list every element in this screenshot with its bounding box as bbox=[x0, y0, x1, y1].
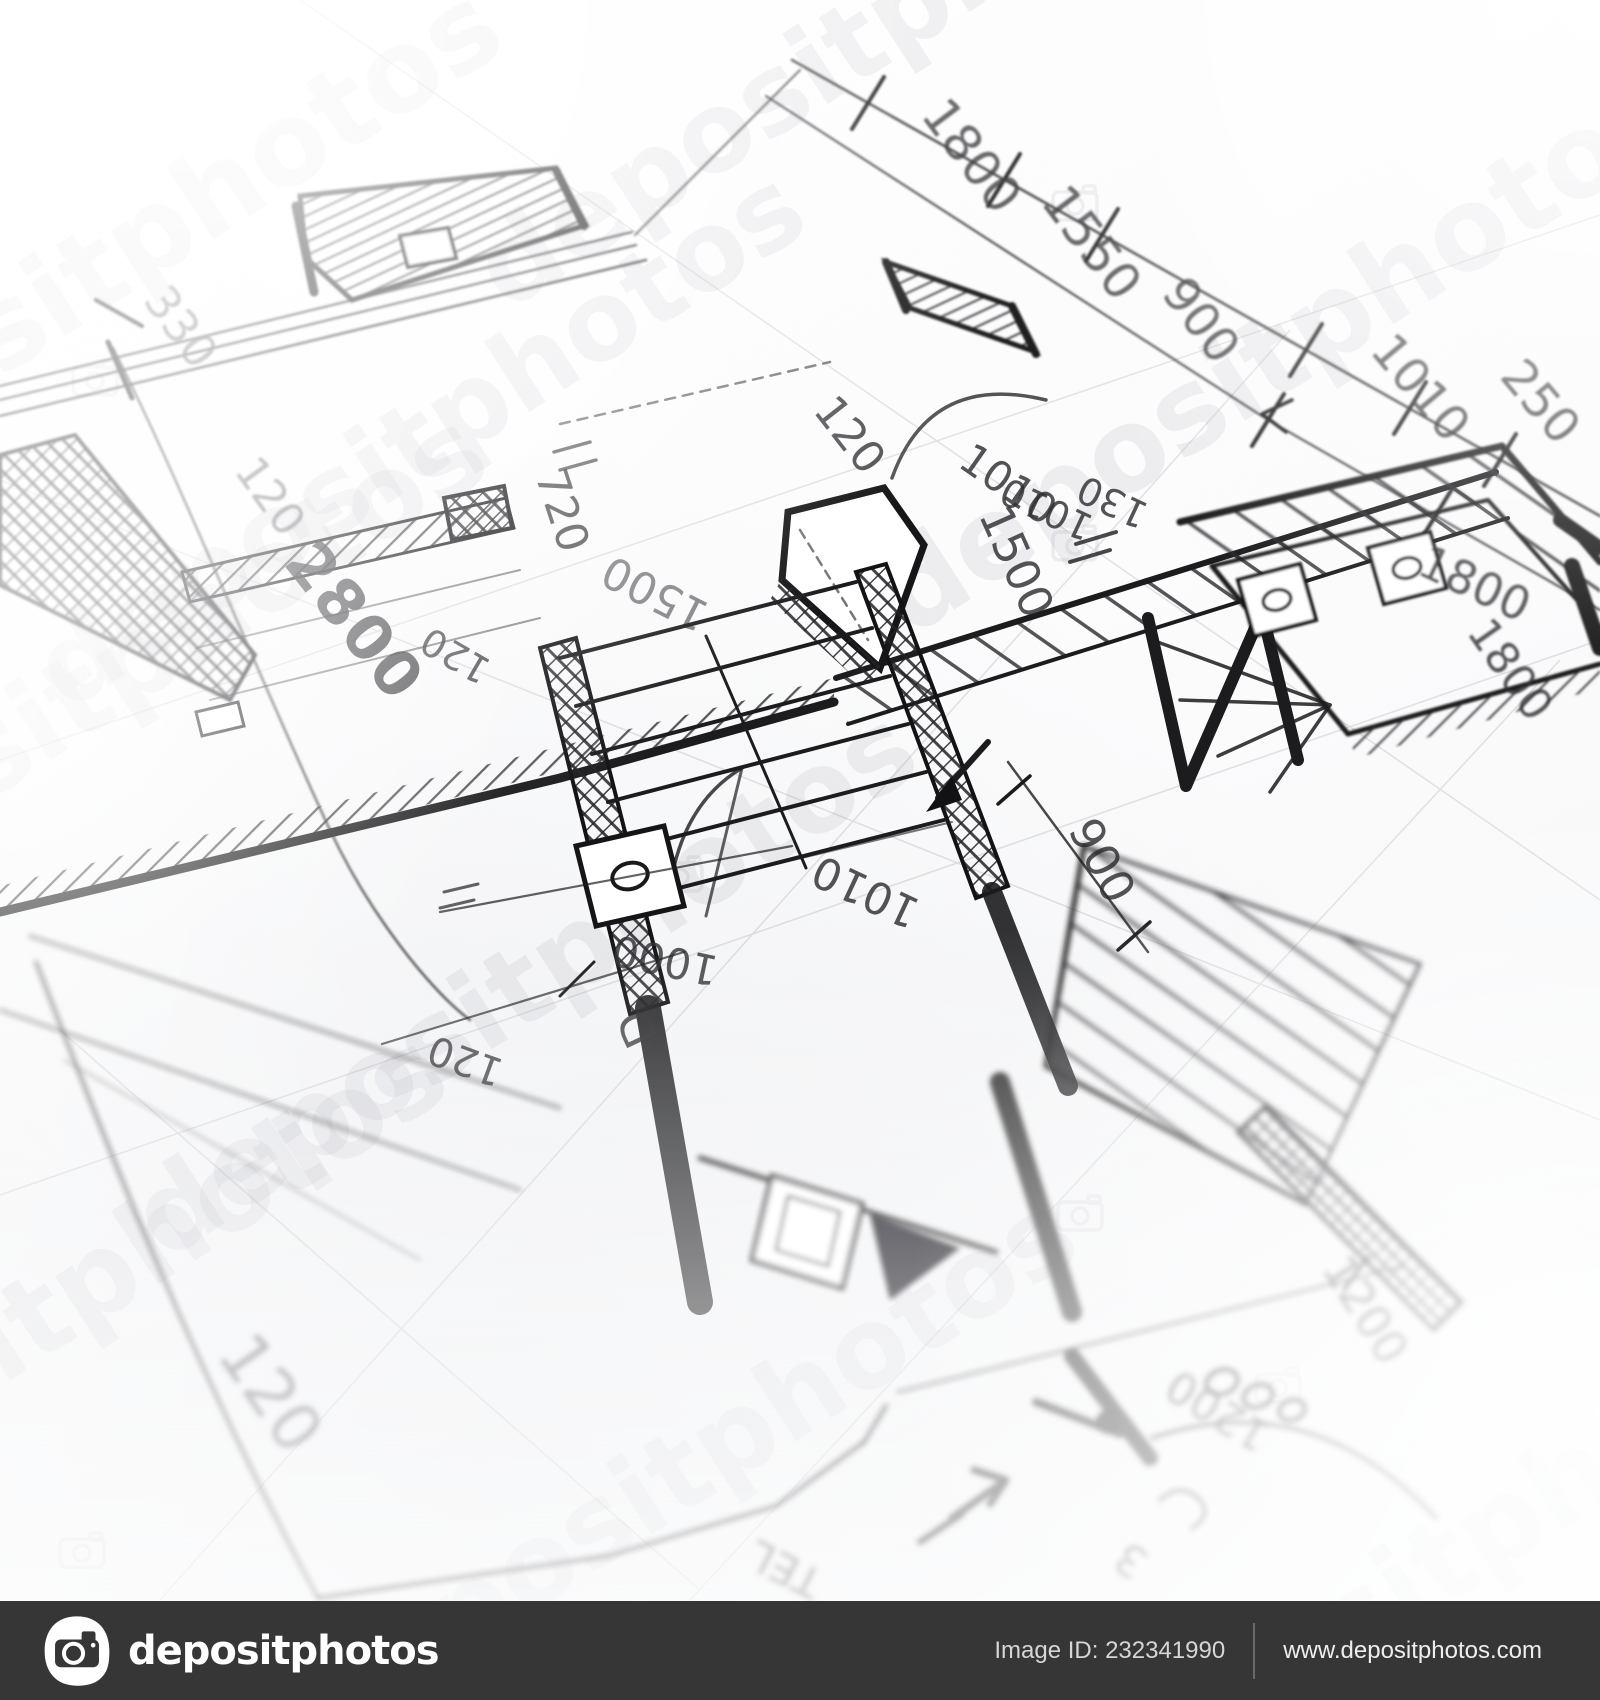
dim-label-1010-lower: 1010 bbox=[804, 844, 927, 938]
striped-room bbox=[1046, 846, 1420, 1204]
dim-label-1500-flipped: 1500 bbox=[594, 545, 717, 641]
dim-label-250: 250 bbox=[1489, 349, 1591, 455]
footer-brand-block: depositphotos bbox=[0, 1614, 439, 1688]
label-TEL: TEL bbox=[740, 1530, 831, 1601]
footer-url: www.depositphotos.com bbox=[1283, 1637, 1542, 1665]
floorplan-sketch-photo: depositphotos depositphotos depositphoto… bbox=[0, 0, 1600, 1601]
depositphotos-camera-icon bbox=[40, 1614, 114, 1688]
footer-meta-block: Image ID: 232341990 www.depositphotos.co… bbox=[994, 1623, 1600, 1679]
top-right-room: 1800 1800 bbox=[1180, 446, 1600, 758]
dim-label-720: 720 bbox=[525, 463, 599, 559]
dim-label-120-flipped: 120 bbox=[413, 618, 498, 692]
digit-3: 3 bbox=[1106, 1531, 1158, 1589]
dim-label-120-big: 120 bbox=[203, 1319, 338, 1466]
dim-label-1800-chain: 1800 bbox=[910, 88, 1033, 225]
stock-photo-page: depositphotos depositphotos depositphoto… bbox=[0, 0, 1600, 1700]
door-swing-arc-bottom bbox=[1152, 1422, 1436, 1518]
arrow-bottom bbox=[952, 1470, 1006, 1518]
dim-label-1800-room: 1800 bbox=[1410, 534, 1539, 632]
floorplan-sketch: depositphotos depositphotos depositphoto… bbox=[0, 0, 1600, 1601]
dim-label-1550: 1550 bbox=[1030, 175, 1153, 312]
dim-label-120-top: 120 bbox=[803, 386, 895, 484]
watermark-footer-bar: depositphotos Image ID: 232341990 www.de… bbox=[0, 1601, 1600, 1700]
door-frame bbox=[752, 1176, 862, 1288]
footer-brand-text: depositphotos bbox=[128, 1628, 439, 1674]
footer-divider bbox=[1253, 1623, 1255, 1679]
footer-image-id: Image ID: 232341990 bbox=[994, 1637, 1225, 1665]
dim-label-1010-chain: 1010 bbox=[1360, 323, 1481, 453]
wall-dark-vertical bbox=[648, 1008, 700, 1302]
